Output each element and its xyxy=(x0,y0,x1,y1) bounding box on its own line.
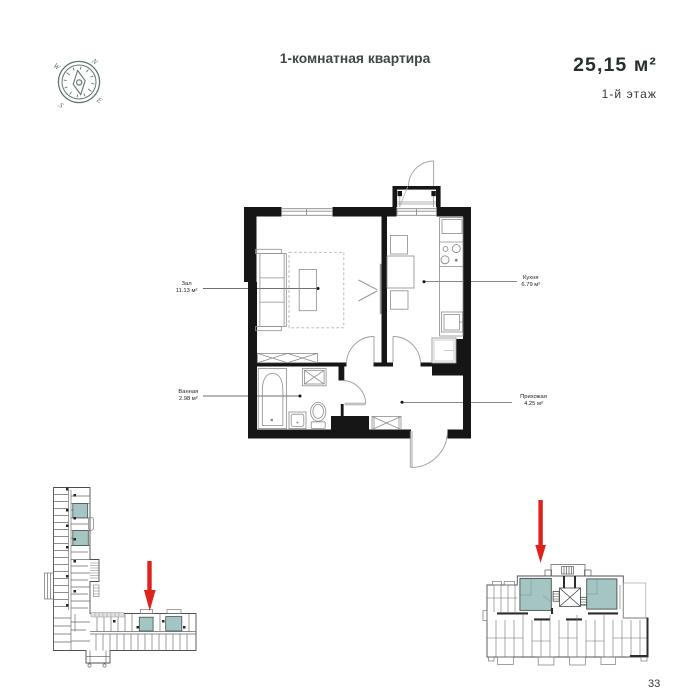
svg-text:W: W xyxy=(52,61,63,72)
svg-text:E: E xyxy=(94,95,104,106)
svg-text:S: S xyxy=(57,100,66,110)
